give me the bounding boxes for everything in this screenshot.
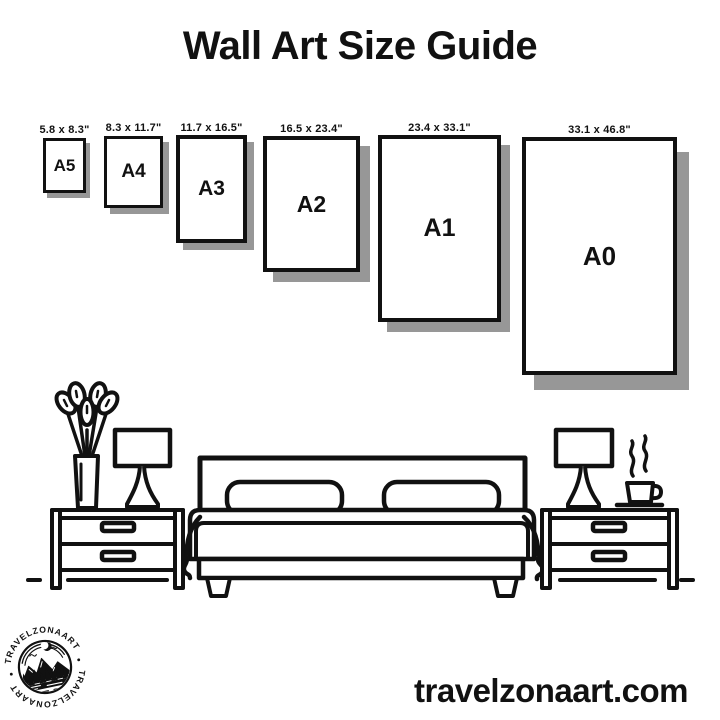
table-lamp-right — [556, 430, 612, 507]
steam — [644, 436, 647, 471]
table-lamp-left — [115, 430, 170, 507]
size-dimensions-a4: 8.3 x 11.7" — [106, 122, 162, 134]
vase-plant — [53, 382, 122, 508]
lamp-base — [127, 466, 158, 507]
brand-logo-badge: TRAVELZONAART TRAVELZONAART — [3, 625, 87, 709]
coffee-cup — [617, 436, 662, 505]
lamp-base — [568, 466, 599, 507]
separator-dot — [77, 658, 80, 661]
size-box-a3: 11.7 x 16.5" A3 — [176, 135, 247, 243]
drawer-handle — [593, 523, 625, 531]
bed — [184, 458, 543, 596]
size-dimensions-a3: 11.7 x 16.5" — [180, 122, 242, 134]
size-code-a5: A5 — [54, 156, 76, 176]
nightstand-left — [52, 510, 183, 588]
drawer-handle — [593, 552, 625, 560]
bed-leg — [494, 578, 517, 596]
cup-body — [627, 483, 653, 502]
bed-base — [199, 559, 523, 578]
vase — [75, 456, 98, 508]
size-code-a1: A1 — [424, 214, 456, 243]
bed-leg — [207, 578, 230, 596]
size-dimensions-a1: 23.4 x 33.1" — [408, 122, 471, 134]
size-box-a4: 8.3 x 11.7" A4 — [104, 136, 163, 208]
bedroom-illustration — [0, 378, 720, 600]
drawer-handle — [102, 552, 134, 560]
size-box-a5: 5.8 x 8.3" A5 — [43, 138, 86, 193]
nightstand-right — [542, 510, 677, 588]
website-url: travelzonaart.com — [414, 672, 688, 710]
lamp-shade — [115, 430, 170, 466]
size-dimensions-a2: 16.5 x 23.4" — [280, 123, 343, 135]
steam — [631, 441, 634, 476]
size-dimensions-a5: 5.8 x 8.3" — [39, 124, 89, 136]
mattress — [190, 510, 534, 559]
size-code-a3: A3 — [198, 177, 225, 201]
drawer-handle — [102, 523, 134, 531]
size-guide-infographic: Wall Art Size Guide 5.8 x 8.3" A5 8.3 x … — [0, 0, 720, 720]
size-code-a0: A0 — [583, 241, 616, 272]
page-title: Wall Art Size Guide — [0, 24, 720, 69]
size-code-a4: A4 — [121, 161, 145, 183]
size-dimensions-a0: 33.1 x 46.8" — [568, 124, 631, 136]
size-box-a0: 33.1 x 46.8" A0 — [522, 137, 677, 375]
size-box-a1: 23.4 x 33.1" A1 — [378, 135, 501, 322]
size-code-a2: A2 — [297, 191, 326, 218]
lamp-shade — [556, 430, 612, 466]
separator-dot — [10, 672, 13, 675]
size-box-a2: 16.5 x 23.4" A2 — [263, 136, 360, 272]
